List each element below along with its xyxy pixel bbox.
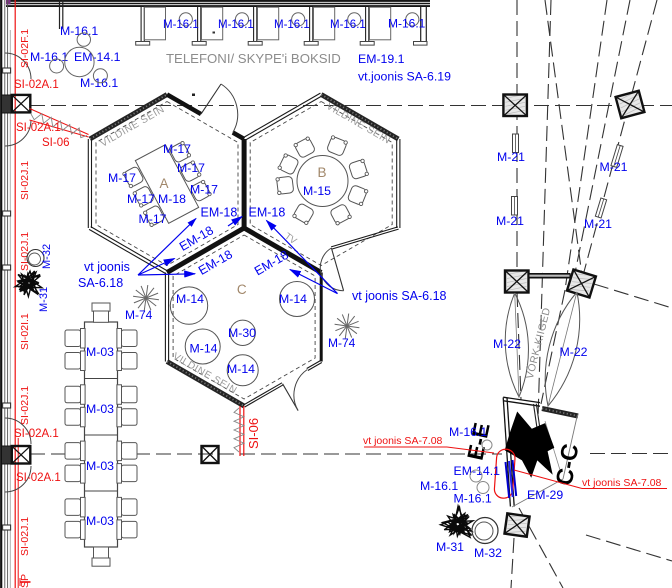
svg-text:M-14: M-14: [190, 342, 218, 356]
svg-text:M-16.1: M-16.1: [163, 19, 199, 31]
svg-text:M-17: M-17: [163, 142, 191, 156]
svg-text:vt joonis SA-7.08: vt joonis SA-7.08: [363, 435, 443, 447]
svg-text:M-16.1: M-16.1: [454, 492, 492, 506]
svg-text:C: C: [237, 282, 247, 297]
svg-text:SA-6.18: SA-6.18: [78, 276, 123, 290]
svg-text:M-17: M-17: [139, 212, 167, 226]
svg-text:SI-06: SI-06: [246, 418, 261, 449]
svg-text:M-16.1: M-16.1: [218, 19, 254, 31]
svg-text:M-17: M-17: [190, 183, 218, 197]
svg-text:SI-02A.1: SI-02A.1: [16, 122, 61, 134]
svg-text:M-21: M-21: [496, 214, 524, 228]
svg-text:M-03: M-03: [86, 459, 114, 473]
svg-text:B: B: [317, 165, 326, 180]
svg-text:M-15: M-15: [303, 184, 331, 198]
svg-text:M-14: M-14: [176, 292, 204, 306]
svg-text:vt joonis: vt joonis: [84, 260, 130, 274]
svg-text:SI-02A.1: SI-02A.1: [16, 472, 61, 484]
svg-text:M-32: M-32: [474, 546, 502, 560]
svg-text:SI-02J.1: SI-02J.1: [19, 232, 31, 271]
svg-text:SI-02J.1: SI-02J.1: [19, 386, 31, 425]
svg-text:M-17: M-17: [177, 161, 205, 175]
svg-text:M-03: M-03: [86, 402, 114, 416]
svg-text:M-16.1: M-16.1: [449, 425, 487, 439]
svg-text:M-21: M-21: [497, 150, 525, 164]
svg-text:vt joonis SA-6.18: vt joonis SA-6.18: [352, 289, 447, 303]
svg-text:M-16.1: M-16.1: [388, 17, 426, 31]
svg-text:SP: SP: [19, 574, 31, 588]
svg-text:M-03: M-03: [86, 514, 114, 528]
svg-text:M-03: M-03: [86, 345, 114, 359]
svg-text:M-14: M-14: [279, 292, 307, 306]
svg-text:M-16.1: M-16.1: [330, 19, 366, 31]
svg-text:M-22: M-22: [493, 337, 521, 351]
svg-text:M-22: M-22: [560, 345, 588, 359]
svg-text:vt joonis SA-7.08: vt joonis SA-7.08: [582, 477, 662, 489]
svg-text:M-21: M-21: [600, 160, 628, 174]
svg-text:M-31: M-31: [38, 287, 50, 312]
svg-text:M-14: M-14: [227, 362, 255, 376]
svg-text:M-16.1: M-16.1: [60, 24, 98, 38]
svg-text:EM-18: EM-18: [249, 206, 286, 220]
svg-text:M-74: M-74: [125, 308, 153, 322]
svg-text:SI-02J.1: SI-02J.1: [19, 161, 31, 200]
svg-text:EM-29: EM-29: [527, 488, 563, 502]
svg-text:M-31: M-31: [436, 540, 464, 554]
svg-text:M-16.1: M-16.1: [274, 19, 310, 31]
svg-text:M-17: M-17: [127, 192, 155, 206]
svg-text:SI-02J.1: SI-02J.1: [19, 517, 31, 556]
svg-text:SI-02A.1: SI-02A.1: [14, 428, 59, 440]
svg-text:EM-14.1: EM-14.1: [74, 50, 121, 64]
svg-text:M-74: M-74: [328, 336, 356, 350]
svg-text:EM-14.1: EM-14.1: [454, 464, 501, 478]
svg-text:EM-19.1: EM-19.1: [358, 52, 405, 66]
svg-text:EM-18: EM-18: [201, 206, 238, 220]
svg-text:SI-06: SI-06: [42, 137, 70, 149]
svg-text:TELEFONI/ SKYPE'i BOKSID: TELEFONI/ SKYPE'i BOKSID: [166, 51, 341, 66]
svg-text:A: A: [159, 176, 168, 191]
svg-text:SI-02A.1: SI-02A.1: [14, 79, 59, 91]
svg-text:M-18: M-18: [158, 192, 186, 206]
svg-text:M-32: M-32: [41, 244, 53, 269]
svg-text:vt.joonis SA-6.19: vt.joonis SA-6.19: [358, 70, 451, 84]
svg-text:M-30: M-30: [228, 326, 256, 340]
svg-text:M-21: M-21: [584, 217, 612, 231]
svg-text:SI-02I.1: SI-02I.1: [19, 313, 31, 350]
svg-text:M-17: M-17: [108, 171, 136, 185]
